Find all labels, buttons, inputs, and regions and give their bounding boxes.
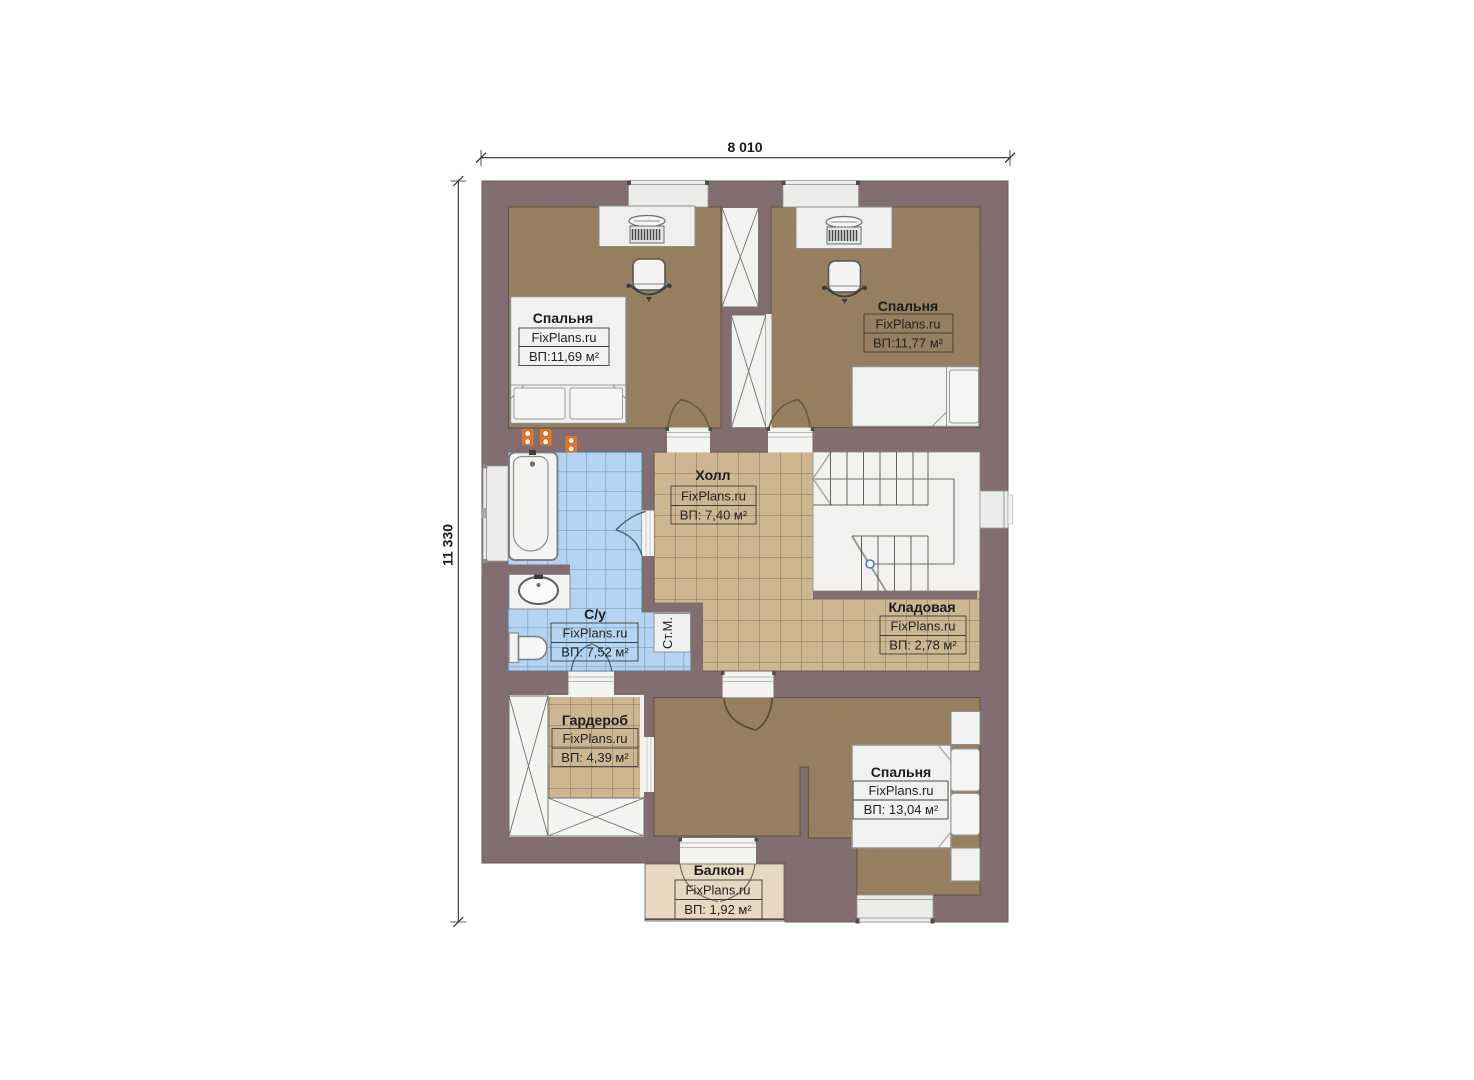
svg-text:Спальня: Спальня [871, 764, 931, 780]
svg-text:ВП: 7,52 м²: ВП: 7,52 м² [561, 645, 629, 660]
svg-text:Холл: Холл [695, 467, 730, 483]
svg-text:Ст.М.: Ст.М. [660, 617, 675, 649]
svg-text:ВП:11,77 м²: ВП:11,77 м² [873, 336, 944, 351]
svg-text:ВП: 13,04 м²: ВП: 13,04 м² [864, 802, 939, 817]
svg-text:FixPlans.ru: FixPlans.ru [890, 619, 955, 634]
svg-text:ВП: 4,39 м²: ВП: 4,39 м² [561, 750, 629, 765]
svg-text:Кладовая: Кладовая [888, 599, 955, 615]
svg-text:Балкон: Балкон [694, 862, 745, 878]
svg-text:FixPlans.ru: FixPlans.ru [868, 783, 933, 798]
svg-text:11 330: 11 330 [440, 524, 456, 566]
svg-text:ВП: 7,40 м²: ВП: 7,40 м² [680, 508, 748, 523]
svg-text:FixPlans.ru: FixPlans.ru [562, 626, 627, 641]
svg-text:ВП: 2,78 м²: ВП: 2,78 м² [889, 638, 957, 653]
svg-text:FixPlans.ru: FixPlans.ru [685, 883, 750, 898]
svg-text:ВП: 1,92 м²: ВП: 1,92 м² [684, 902, 752, 917]
svg-text:Спальня: Спальня [533, 310, 593, 326]
svg-text:8 010: 8 010 [727, 139, 762, 155]
svg-text:Гардероб: Гардероб [562, 712, 629, 728]
svg-text:FixPlans.ru: FixPlans.ru [875, 317, 940, 332]
svg-text:FixPlans.ru: FixPlans.ru [562, 731, 627, 746]
svg-text:Спальня: Спальня [878, 298, 938, 314]
svg-text:FixPlans.ru: FixPlans.ru [681, 489, 746, 504]
svg-text:С/у: С/у [584, 606, 606, 622]
svg-text:ВП:11,69 м²: ВП:11,69 м² [529, 349, 600, 364]
svg-text:FixPlans.ru: FixPlans.ru [531, 330, 596, 345]
